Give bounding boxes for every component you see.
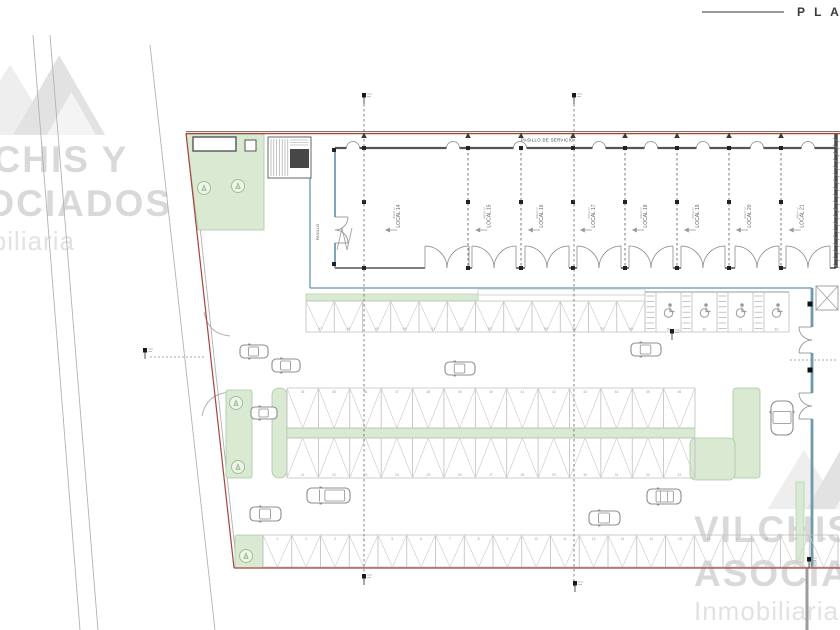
stall-number: 11 xyxy=(563,537,567,541)
door-swing xyxy=(651,246,673,268)
tree-icon xyxy=(232,180,245,193)
stall-chevron xyxy=(381,438,397,478)
wc-wheel xyxy=(736,309,744,317)
grid-junction xyxy=(623,200,627,204)
door-swing xyxy=(735,246,757,268)
stall-number: 1 xyxy=(276,537,278,541)
car-mirror xyxy=(258,419,261,421)
stall-number: 19 xyxy=(793,537,797,541)
car-icon xyxy=(589,510,620,527)
door-swing xyxy=(494,246,516,268)
stall-chevron xyxy=(450,535,464,567)
wheelchair-icon xyxy=(736,303,746,317)
stall-number: 35 xyxy=(332,390,336,394)
door-swing xyxy=(472,246,494,268)
stall-number: 47 xyxy=(318,327,322,331)
door-swing xyxy=(802,142,815,149)
stall-chevron xyxy=(546,301,560,332)
local-arrow-icon xyxy=(580,228,585,233)
local-area-label: ÁREA m² xyxy=(743,207,747,219)
stall-number: 12 xyxy=(592,537,596,541)
stall-chevron xyxy=(538,388,554,428)
stall-number: 59 xyxy=(667,327,671,331)
stall-number: 25 xyxy=(426,473,430,477)
local-arrow-icon xyxy=(475,228,480,233)
stall-chevron xyxy=(766,535,780,567)
wall-junction xyxy=(808,302,813,307)
stall-chevron xyxy=(460,388,476,428)
grid-junction xyxy=(675,146,679,150)
stall-number: 46 xyxy=(677,390,681,394)
door-swing xyxy=(447,142,460,149)
grid-junction xyxy=(623,266,627,270)
door-swing xyxy=(335,217,348,230)
stall-chevron xyxy=(397,388,413,428)
stall-chevron xyxy=(350,438,366,478)
car-mirror xyxy=(640,356,643,358)
grid-junction xyxy=(623,146,627,150)
car-icon xyxy=(272,358,300,374)
door-swing xyxy=(447,246,469,268)
service-fixture xyxy=(337,228,352,250)
survey-marker-flag xyxy=(573,581,577,586)
stall-number: 3 xyxy=(334,537,336,541)
stall-chevron xyxy=(617,388,633,428)
stall-chevron xyxy=(334,388,350,428)
door-swing xyxy=(786,246,808,268)
stall-number: 30 xyxy=(583,473,587,477)
grid-junction xyxy=(727,146,731,150)
stall-number: 57 xyxy=(601,327,605,331)
survey-marker-flag xyxy=(572,93,576,98)
stall-number: 62 xyxy=(775,327,779,331)
car-mirror xyxy=(657,504,660,506)
local-arrow-icon xyxy=(632,228,637,233)
wc-wheel xyxy=(664,309,672,317)
wc-head xyxy=(740,303,744,307)
stall-chevron xyxy=(318,438,334,478)
wc-wheel xyxy=(700,309,708,317)
stall-chevron xyxy=(349,535,363,567)
stall-chevron xyxy=(428,388,444,428)
stall-chevron xyxy=(507,388,523,428)
local-label: LOCAL 17 xyxy=(591,204,597,227)
stall-number: 22 xyxy=(332,473,336,477)
survey-marker-flag xyxy=(362,93,366,98)
door-swing xyxy=(799,393,812,406)
stall-chevron xyxy=(365,388,381,428)
stall-number: 18 xyxy=(764,537,768,541)
green-buffer-strip xyxy=(306,294,478,301)
grid-junction xyxy=(571,146,575,150)
local-area-label: ÁREA m² xyxy=(482,207,486,219)
stall-number: 9 xyxy=(506,537,508,541)
car-icon xyxy=(240,344,268,360)
car-mirror xyxy=(454,361,457,363)
stall-number: 38 xyxy=(426,390,430,394)
door-swing xyxy=(703,246,725,268)
stall-number: 14 xyxy=(649,537,653,541)
stall-chevron xyxy=(436,535,450,567)
door-swing xyxy=(681,246,703,268)
stall-chevron xyxy=(490,301,504,332)
grid-junction xyxy=(519,266,523,270)
car-body xyxy=(771,401,793,435)
grid-junction xyxy=(332,148,336,152)
grid-junction xyxy=(571,200,575,204)
stall-number: 32 xyxy=(646,473,650,477)
car-mirror xyxy=(248,358,251,360)
stall-chevron xyxy=(585,438,601,478)
title-text: P L A xyxy=(797,5,840,19)
stall-chevron xyxy=(569,438,585,478)
stall-chevron xyxy=(651,535,665,567)
stall-chevron xyxy=(565,535,579,567)
local-arrow-icon xyxy=(789,228,794,233)
stall-number: 31 xyxy=(615,473,619,477)
stall-chevron xyxy=(507,438,523,478)
stall-chevron xyxy=(622,535,636,567)
stall-chevron xyxy=(407,535,421,567)
grid-junction xyxy=(675,200,679,204)
planter-box xyxy=(245,140,256,151)
local-label: LOCAL 14 xyxy=(396,204,402,227)
stall-chevron xyxy=(518,301,532,332)
local-arrow-icon xyxy=(684,228,689,233)
car-mirror xyxy=(280,358,283,360)
stall-chevron xyxy=(475,388,491,428)
stall-number: 50 xyxy=(403,327,407,331)
door-swing xyxy=(425,246,447,268)
stall-chevron xyxy=(413,438,429,478)
stall-chevron xyxy=(601,388,617,428)
stall-chevron xyxy=(648,438,664,478)
stall-number: 8 xyxy=(478,537,480,541)
car-icon xyxy=(251,406,277,421)
survey-marker-flag xyxy=(670,329,674,334)
stall-number: 61 xyxy=(739,327,743,331)
stall-chevron xyxy=(507,535,521,567)
stall-chevron xyxy=(378,535,392,567)
stall-chevron xyxy=(444,388,460,428)
stall-number: 7 xyxy=(449,537,451,541)
stall-chevron xyxy=(601,438,617,478)
local-area-label: ÁREA m² xyxy=(796,207,800,219)
survey-marker-flag xyxy=(807,557,811,562)
stall-number: 16 xyxy=(707,537,711,541)
stall-chevron xyxy=(413,388,429,428)
stall-chevron xyxy=(277,535,291,567)
car-mirror xyxy=(598,510,601,512)
car-mirror xyxy=(454,375,457,377)
car-icon xyxy=(631,342,661,358)
car-mirror xyxy=(259,506,262,508)
stall-chevron xyxy=(554,438,570,478)
local-area-label: ÁREA m² xyxy=(639,207,643,219)
car-icon xyxy=(250,506,281,523)
stall-number: 39 xyxy=(458,390,462,394)
grid-junction xyxy=(571,266,575,270)
survey-marker xyxy=(572,93,582,104)
car-mirror xyxy=(320,503,323,505)
door-swing xyxy=(577,246,599,268)
survey-marker xyxy=(670,329,680,340)
stall-number: 34 xyxy=(301,390,305,394)
stall-number: 52 xyxy=(459,327,463,331)
stall-chevron xyxy=(574,301,588,332)
grid-junction xyxy=(332,262,336,266)
stall-chevron xyxy=(479,535,493,567)
local-label: LOCAL 18 xyxy=(643,204,649,227)
stall-chevron xyxy=(491,438,507,478)
title-rule-line xyxy=(702,11,784,13)
stall-number: 54 xyxy=(516,327,520,331)
stall-number: 20 xyxy=(822,537,826,541)
green-island xyxy=(272,388,287,478)
stall-number: 41 xyxy=(520,390,524,394)
site-plan-drawing: 4748495051525354555657583435363738394041… xyxy=(0,0,840,630)
grid-junction xyxy=(466,146,470,150)
stall-chevron xyxy=(554,388,570,428)
stall-chevron xyxy=(648,388,664,428)
stall-number: 29 xyxy=(552,473,556,477)
car-icon xyxy=(445,361,475,377)
van-icon xyxy=(307,487,350,505)
stall-chevron xyxy=(664,388,680,428)
tree-icon xyxy=(240,550,253,563)
stall-number: 5 xyxy=(391,537,393,541)
local-area-label: ÁREA m² xyxy=(587,207,591,219)
boundary-layer xyxy=(186,132,840,568)
stall-chevron xyxy=(493,535,507,567)
stall-chevron xyxy=(365,438,381,478)
stall-number: 27 xyxy=(489,473,493,477)
grid-junction xyxy=(779,266,783,270)
door-swing xyxy=(599,246,621,268)
stall-number: 33 xyxy=(677,473,681,477)
stall-chevron xyxy=(292,535,306,567)
stall-chevron xyxy=(306,535,320,567)
street-layer xyxy=(33,35,237,630)
stall-chevron xyxy=(287,438,303,478)
stall-chevron xyxy=(679,388,695,428)
door-swing xyxy=(808,246,830,268)
stall-chevron xyxy=(464,535,478,567)
car-mirror xyxy=(793,411,795,414)
stall-chevron xyxy=(303,438,319,478)
car-mirror xyxy=(598,525,601,527)
local-arrow-icon xyxy=(528,228,533,233)
grid-junction xyxy=(779,200,783,204)
wc-head xyxy=(704,303,708,307)
stall-number: 43 xyxy=(583,390,587,394)
stall-number: 51 xyxy=(431,327,435,331)
car-mirror xyxy=(657,488,660,490)
green-median-strip xyxy=(287,428,695,438)
stall-chevron xyxy=(461,301,475,332)
stall-number: 48 xyxy=(346,327,350,331)
car-icon xyxy=(770,401,795,435)
car-mirror xyxy=(320,487,323,489)
stall-chevron xyxy=(444,438,460,478)
stall-chevron xyxy=(491,388,507,428)
stall-chevron xyxy=(287,388,303,428)
stall-chevron xyxy=(350,388,366,428)
stall-number: 45 xyxy=(646,390,650,394)
service-corridor-label: PASILLO DE SERVICIO xyxy=(521,138,574,143)
door-swing xyxy=(629,246,651,268)
plan-title: P L A xyxy=(702,5,840,19)
elevator-block xyxy=(290,149,309,168)
walkway-layer xyxy=(310,140,812,568)
stall-chevron xyxy=(460,438,476,478)
stall-number: 28 xyxy=(520,473,524,477)
stall-chevron xyxy=(680,535,694,567)
stall-number: 56 xyxy=(572,327,576,331)
stall-chevron xyxy=(475,438,491,478)
street-line xyxy=(33,35,80,630)
stall-chevron xyxy=(303,388,319,428)
survey-marker xyxy=(573,581,583,592)
car-mirror xyxy=(280,372,283,374)
grid-junction xyxy=(466,200,470,204)
wheelchair-icon xyxy=(700,303,710,317)
grid-junction xyxy=(727,200,731,204)
stall-chevron xyxy=(320,301,334,332)
survey-marker xyxy=(362,574,372,585)
stall-chevron xyxy=(536,535,550,567)
wc-head xyxy=(668,303,672,307)
stall-number: 44 xyxy=(615,390,619,394)
street-line xyxy=(150,45,215,630)
stall-chevron xyxy=(522,388,538,428)
stall-number: 40 xyxy=(489,390,493,394)
stall-chevron xyxy=(334,438,350,478)
stall-chevron xyxy=(392,535,406,567)
car-mirror xyxy=(640,342,643,344)
door-swing xyxy=(645,142,658,149)
stall-number: 15 xyxy=(678,537,682,541)
stall-chevron xyxy=(631,301,645,332)
car-mirror xyxy=(259,521,262,523)
local-area-label: ÁREA m² xyxy=(535,207,539,219)
grid-junction xyxy=(519,146,523,150)
door-swing xyxy=(799,406,812,419)
stall-chevron xyxy=(538,438,554,478)
door-swing xyxy=(757,246,779,268)
walkway-pad xyxy=(478,289,645,295)
wheelchair-icon xyxy=(664,303,674,317)
grid-junction xyxy=(779,146,783,150)
planter-box xyxy=(193,137,236,151)
local-label: LOCAL 21 xyxy=(800,204,806,227)
stall-number: 2 xyxy=(305,537,307,541)
local-label: LOCAL 19 xyxy=(695,204,701,227)
green-island xyxy=(733,388,760,478)
local-arrow-icon xyxy=(736,228,741,233)
grid-junction xyxy=(675,266,679,270)
stall-chevron xyxy=(335,535,349,567)
stall-chevron xyxy=(263,535,277,567)
car-mirror xyxy=(770,411,772,414)
stall-chevron xyxy=(737,535,751,567)
stall-chevron xyxy=(664,438,680,478)
local-label: LOCAL 16 xyxy=(539,204,545,227)
local-area-label: ÁREA m² xyxy=(691,207,695,219)
car-mirror xyxy=(258,406,261,408)
stall-chevron xyxy=(318,388,334,428)
stall-chevron xyxy=(348,301,362,332)
wheelchair-icon xyxy=(772,303,782,317)
tree-icon xyxy=(198,182,211,195)
tree-icon xyxy=(232,461,245,474)
wc-wheel xyxy=(772,309,780,317)
stall-chevron xyxy=(321,535,335,567)
local-area-label: ÁREA m² xyxy=(392,207,396,219)
door-swing xyxy=(547,246,569,268)
stall-chevron xyxy=(381,388,397,428)
stall-chevron xyxy=(585,388,601,428)
stall-chevron xyxy=(433,301,447,332)
stall-number: 26 xyxy=(458,473,462,477)
survey-marker xyxy=(362,93,372,104)
survey-marker-flag xyxy=(143,348,147,353)
local-arrow-icon xyxy=(385,228,390,233)
stall-chevron xyxy=(364,535,378,567)
green-island xyxy=(690,438,735,480)
local-label: LOCAL 15 xyxy=(486,204,492,227)
door-swing xyxy=(593,142,606,149)
stall-chevron xyxy=(594,535,608,567)
stall-number: 10 xyxy=(534,537,538,541)
grid-junction xyxy=(519,200,523,204)
stall-chevron xyxy=(405,301,419,332)
door-swing xyxy=(525,246,547,268)
stall-number: 53 xyxy=(488,327,492,331)
stall-number: 24 xyxy=(395,473,399,477)
stall-chevron xyxy=(569,388,585,428)
stall-chevron xyxy=(824,535,838,567)
wc-head xyxy=(776,303,780,307)
door-swing xyxy=(751,142,764,149)
street-line xyxy=(50,35,98,630)
stall-number: 58 xyxy=(629,327,633,331)
stall-number: 42 xyxy=(552,390,556,394)
stall-chevron xyxy=(632,438,648,478)
door-swing xyxy=(799,340,812,353)
door-swing xyxy=(347,142,360,149)
tree-icon xyxy=(230,397,243,410)
stall-number: 17 xyxy=(735,537,739,541)
grid-junction xyxy=(466,266,470,270)
stall-chevron xyxy=(709,535,723,567)
stall-chevron xyxy=(522,438,538,478)
stall-number: 49 xyxy=(375,327,379,331)
landscape-layer xyxy=(186,134,804,568)
stall-chevron xyxy=(617,438,633,478)
stall-number: 60 xyxy=(703,327,707,331)
local-label: LOCAL 20 xyxy=(747,204,753,227)
side-corridor-label: PASILLO xyxy=(315,224,320,240)
stall-chevron xyxy=(377,301,391,332)
stall-chevron xyxy=(397,438,413,478)
stall-chevron xyxy=(603,301,617,332)
stall-number: 37 xyxy=(395,390,399,394)
stall-chevron xyxy=(421,535,435,567)
car-mirror xyxy=(248,344,251,346)
stall-number: 13 xyxy=(620,537,624,541)
stall-number: 6 xyxy=(420,537,422,541)
